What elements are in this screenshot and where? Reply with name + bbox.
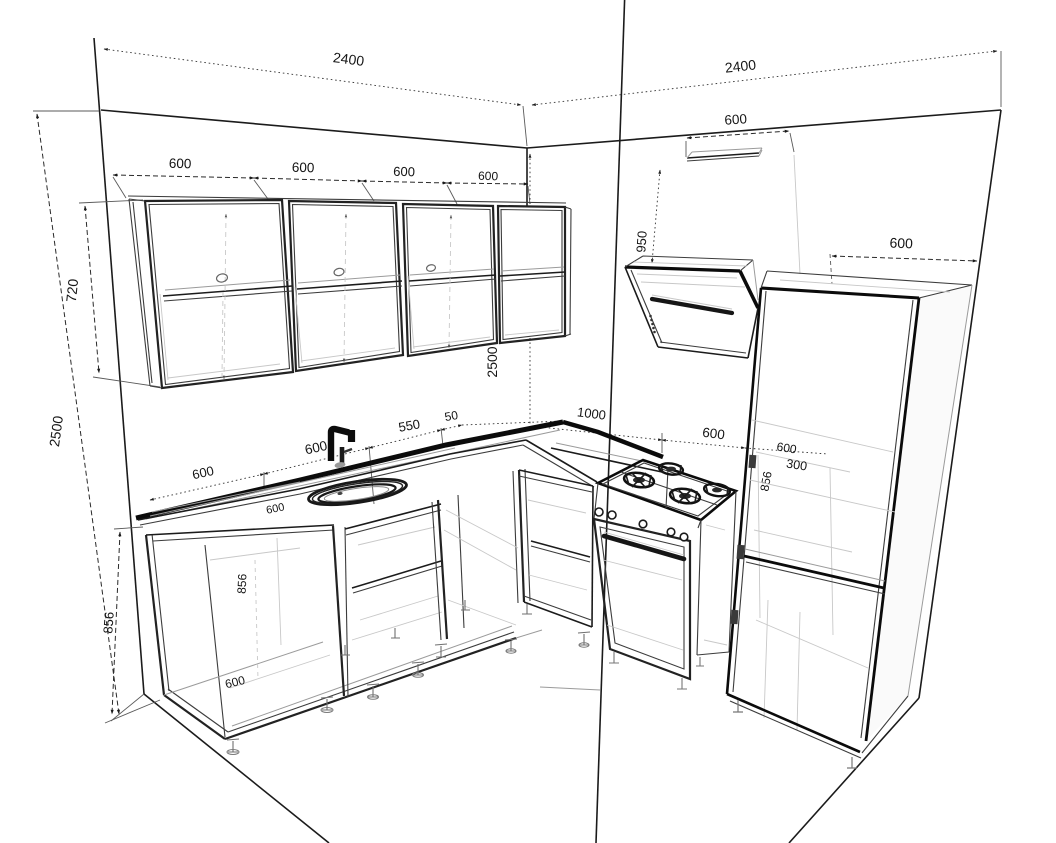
svg-text:856: 856 (234, 573, 249, 594)
svg-text:720: 720 (63, 278, 81, 303)
svg-text:600: 600 (292, 160, 315, 176)
svg-text:600: 600 (701, 425, 725, 443)
svg-text:950: 950 (633, 230, 649, 253)
svg-text:600: 600 (889, 235, 913, 252)
svg-text:2500: 2500 (484, 346, 500, 377)
svg-text:600: 600 (169, 156, 192, 172)
svg-text:600: 600 (478, 169, 499, 184)
svg-text:600: 600 (393, 164, 415, 180)
svg-text:856: 856 (100, 611, 116, 634)
svg-text:600: 600 (724, 111, 748, 128)
svg-text:50: 50 (444, 408, 460, 424)
